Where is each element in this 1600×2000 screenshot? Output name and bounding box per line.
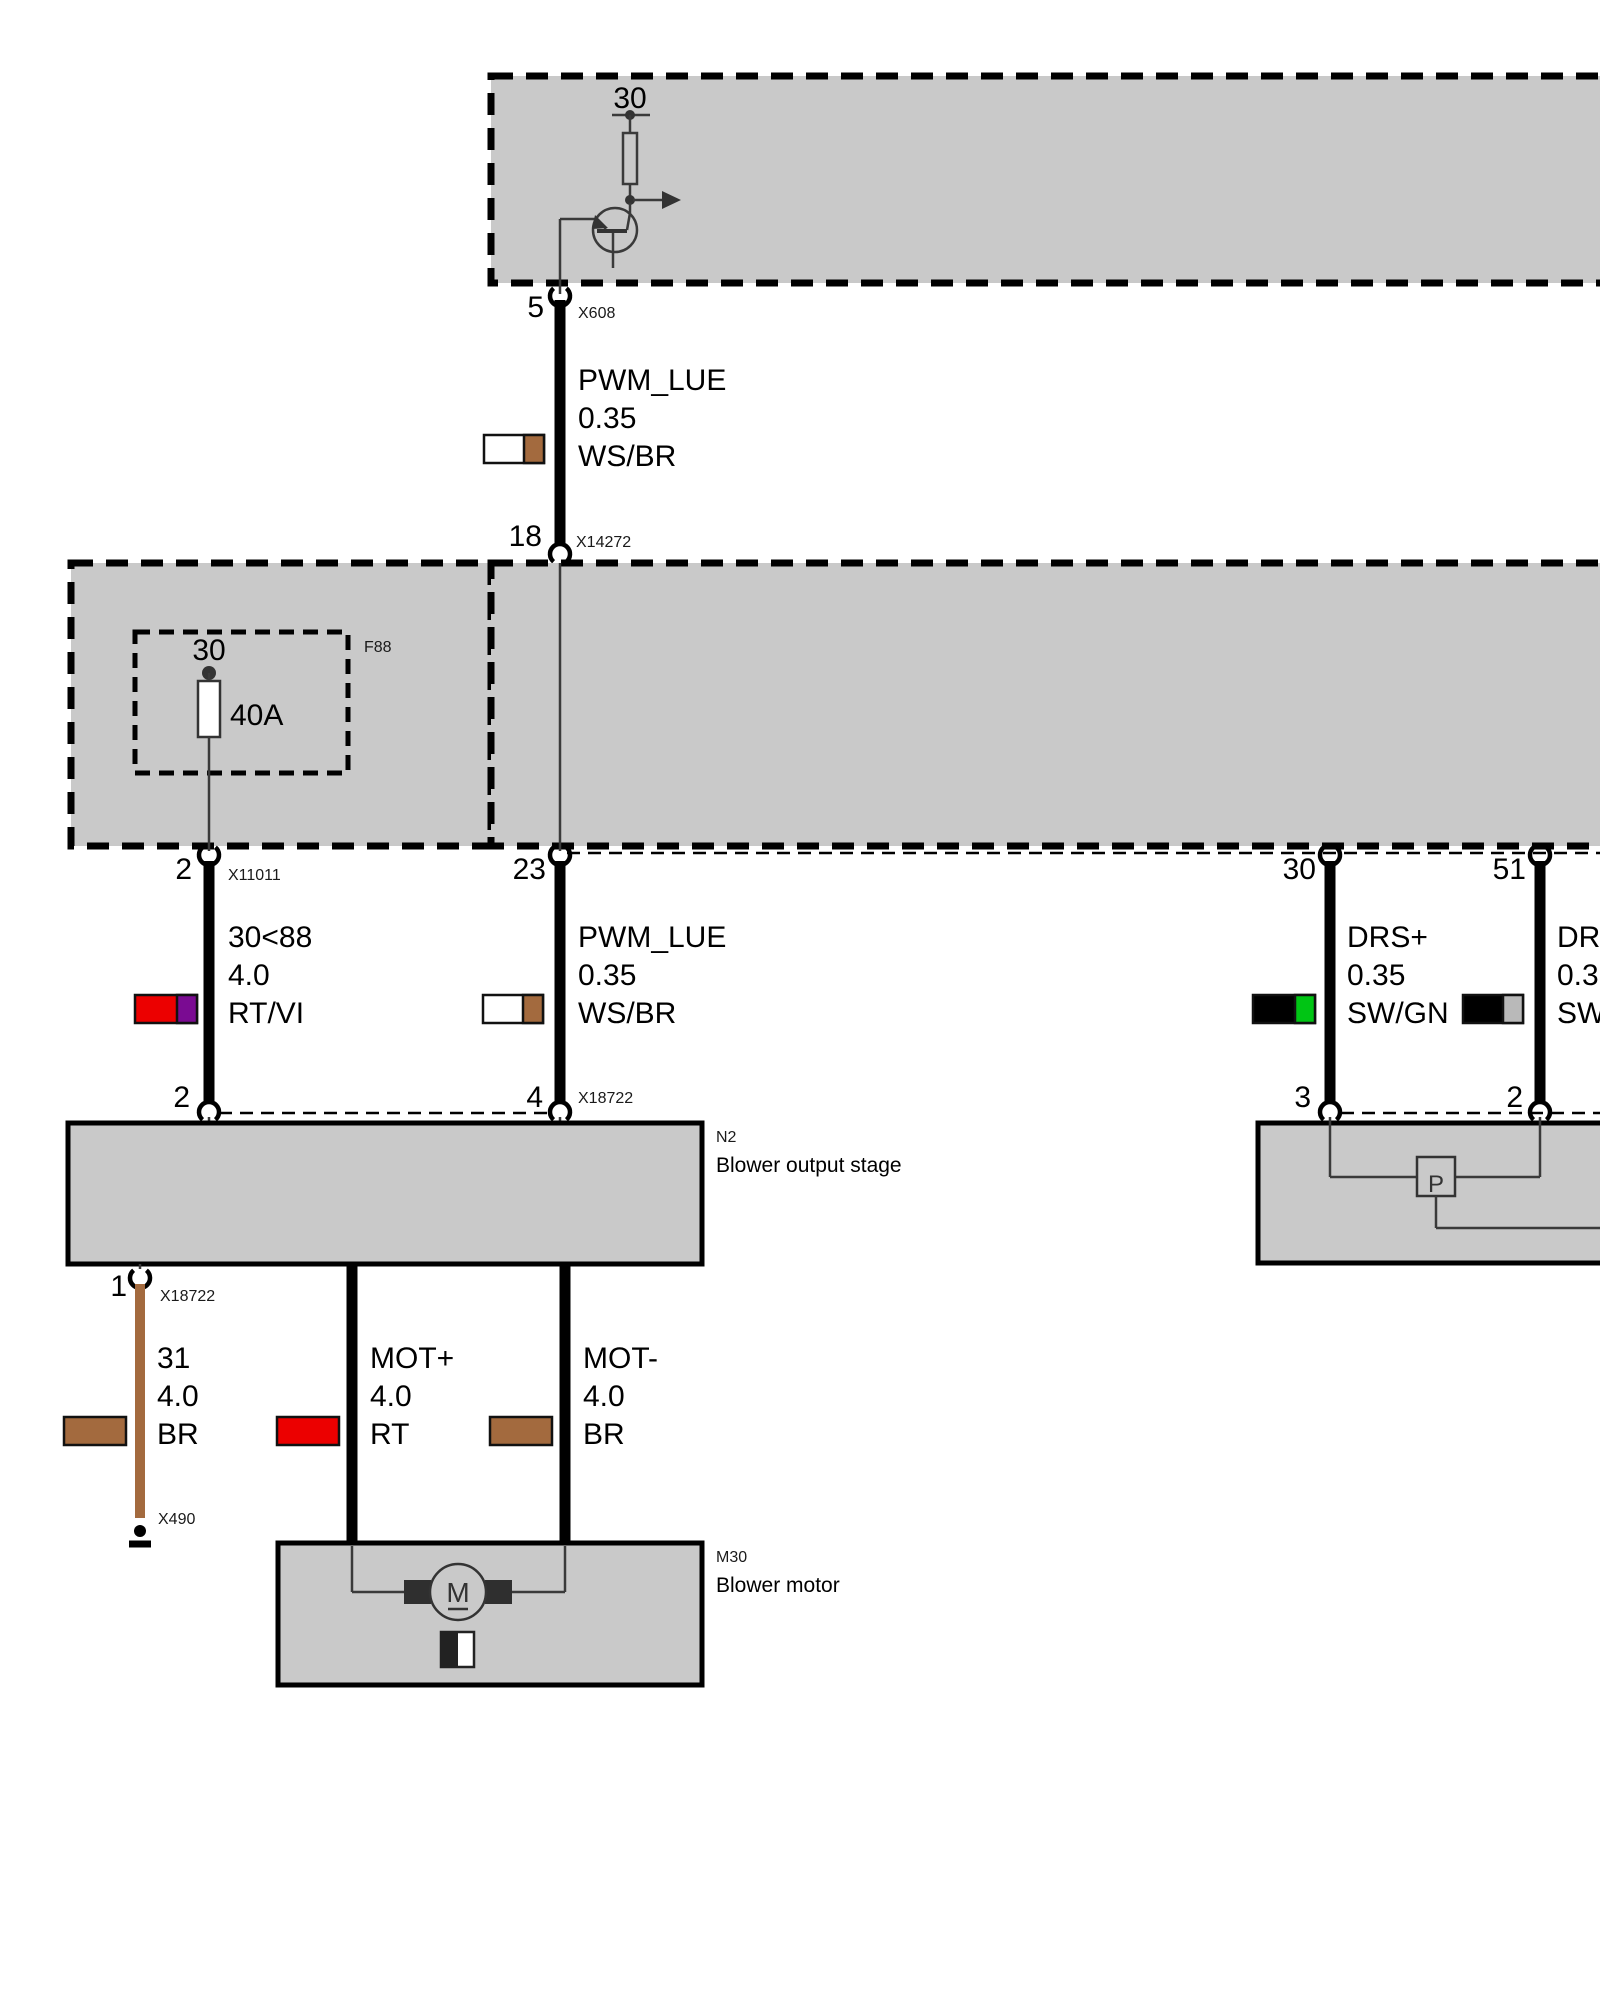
connector-id: X14272 xyxy=(576,534,631,551)
pin-number: 51 xyxy=(1493,853,1526,886)
wire-color-code: WS/BR xyxy=(578,440,676,473)
connector-id: X608 xyxy=(578,305,615,322)
component-code: M30 xyxy=(716,1549,747,1566)
signal-name: 30<88 xyxy=(228,921,312,954)
wire-supply: 2 X11011 30<88 4.0 RT/VI xyxy=(135,847,312,1103)
wire-mot-minus: MOT- 4.0 BR xyxy=(490,1262,658,1545)
color-swatch-sw-gr xyxy=(1463,995,1523,1023)
module-box-outline xyxy=(491,76,1600,283)
component-name: Blower motor xyxy=(716,1574,840,1597)
color-swatch-ws-br xyxy=(483,995,543,1023)
pin-number: 2 xyxy=(173,1081,190,1114)
wire-drs-plus: 30 DRS+ 0.35 SW/GN xyxy=(1253,847,1449,1103)
wire-drs-minus: 51 DRS 0.35 SW/ xyxy=(1463,847,1600,1103)
blower-output-stage: 2 4 X18722 N2 Blower output stage xyxy=(68,1081,902,1264)
wire-size: 0.35 xyxy=(578,402,636,435)
wire-color-code: BR xyxy=(583,1418,625,1451)
wire-color-code: RT/VI xyxy=(228,997,304,1030)
wire-mot-plus: MOT+ 4.0 RT xyxy=(277,1262,454,1545)
right-ecu: 3 2 P xyxy=(1258,1081,1600,1263)
wire-size: 0.35 xyxy=(578,959,636,992)
swatch-stripe xyxy=(1503,995,1523,1023)
junction-box-row: F88 30 40A xyxy=(71,563,1600,851)
fuse-id: F88 xyxy=(364,639,392,656)
color-swatch-rt-vi xyxy=(135,995,197,1023)
wire-color-code: BR xyxy=(157,1418,199,1451)
pressure-symbol: P xyxy=(1428,1171,1444,1198)
swatch-stripe xyxy=(177,995,197,1023)
connector-id: X490 xyxy=(158,1511,195,1528)
wire-color-code: RT xyxy=(370,1418,409,1451)
fuse-terminal-label: 30 xyxy=(192,634,225,667)
fuse-icon xyxy=(198,681,220,737)
pin-number: 5 xyxy=(527,291,544,324)
wire-size: 4.0 xyxy=(228,959,270,992)
connector-id: X18722 xyxy=(578,1090,633,1107)
blower-motor: M M30 Blower motor xyxy=(278,1543,840,1685)
wire-ground: 1 X18722 31 4.0 BR X490 xyxy=(64,1264,215,1544)
wire-color-code: SW/ xyxy=(1557,997,1600,1030)
wire-size: 4.0 xyxy=(157,1380,199,1413)
swatch-stripe xyxy=(1295,995,1315,1023)
signal-name: MOT+ xyxy=(370,1342,454,1375)
motor-symbol: M xyxy=(446,1577,469,1608)
pin-number: 2 xyxy=(1506,1081,1523,1114)
pin-number: 23 xyxy=(513,853,546,886)
connector-id: X18722 xyxy=(160,1288,215,1305)
n2-box-outline xyxy=(68,1123,702,1264)
wire-pwm-mid: 23 PWM_LUE 0.35 WS/BR xyxy=(483,847,726,1103)
power-output-module-box: 30 xyxy=(491,76,1600,294)
signal-name: DRS+ xyxy=(1347,921,1428,954)
swatch-stripe xyxy=(524,435,544,463)
wire-size: 0.35 xyxy=(1347,959,1405,992)
pin-number: 30 xyxy=(1283,853,1316,886)
swatch-stripe xyxy=(523,995,543,1023)
connector-id: X11011 xyxy=(228,867,281,884)
wire-color-code: SW/GN xyxy=(1347,997,1449,1030)
signal-name: MOT- xyxy=(583,1342,658,1375)
pin-number: 4 xyxy=(526,1081,543,1114)
motor-class-icon xyxy=(441,1632,474,1667)
ground-icon xyxy=(129,1525,151,1544)
pin-connector-icon xyxy=(550,544,570,562)
pin-number: 3 xyxy=(1294,1081,1311,1114)
pin-number: 2 xyxy=(175,853,192,886)
color-swatch-br xyxy=(490,1417,552,1445)
wire-pwm-top: 5 X608 PWM_LUE 0.35 WS/BR 18 X14272 xyxy=(484,288,726,561)
signal-name: DRS xyxy=(1557,921,1600,954)
fuse-rating: 40A xyxy=(230,699,283,732)
component-name: Blower output stage xyxy=(716,1154,902,1177)
color-swatch-sw-gn xyxy=(1253,995,1315,1023)
distribution-box-outline xyxy=(491,563,1600,846)
wiring-diagram: 30 5 X608 PWM_LUE 0.35 WS/BR xyxy=(0,0,1600,2000)
color-swatch-ws-br xyxy=(484,435,544,463)
wire-size: 4.0 xyxy=(370,1380,412,1413)
signal-name: 31 xyxy=(157,1342,190,1375)
wire-color-code: WS/BR xyxy=(578,997,676,1030)
wire-size: 4.0 xyxy=(583,1380,625,1413)
color-swatch-br xyxy=(64,1417,126,1445)
pin-number: 1 xyxy=(110,1270,127,1303)
component-code: N2 xyxy=(716,1129,737,1146)
wiring-diagram-page: 30 5 X608 PWM_LUE 0.35 WS/BR xyxy=(0,0,1600,2000)
pin-number: 18 xyxy=(509,520,542,553)
color-swatch-rt xyxy=(277,1417,339,1445)
m30-box-outline xyxy=(278,1543,702,1685)
signal-name: PWM_LUE xyxy=(578,364,726,397)
wire-size: 0.35 xyxy=(1557,959,1600,992)
signal-name: PWM_LUE xyxy=(578,921,726,954)
